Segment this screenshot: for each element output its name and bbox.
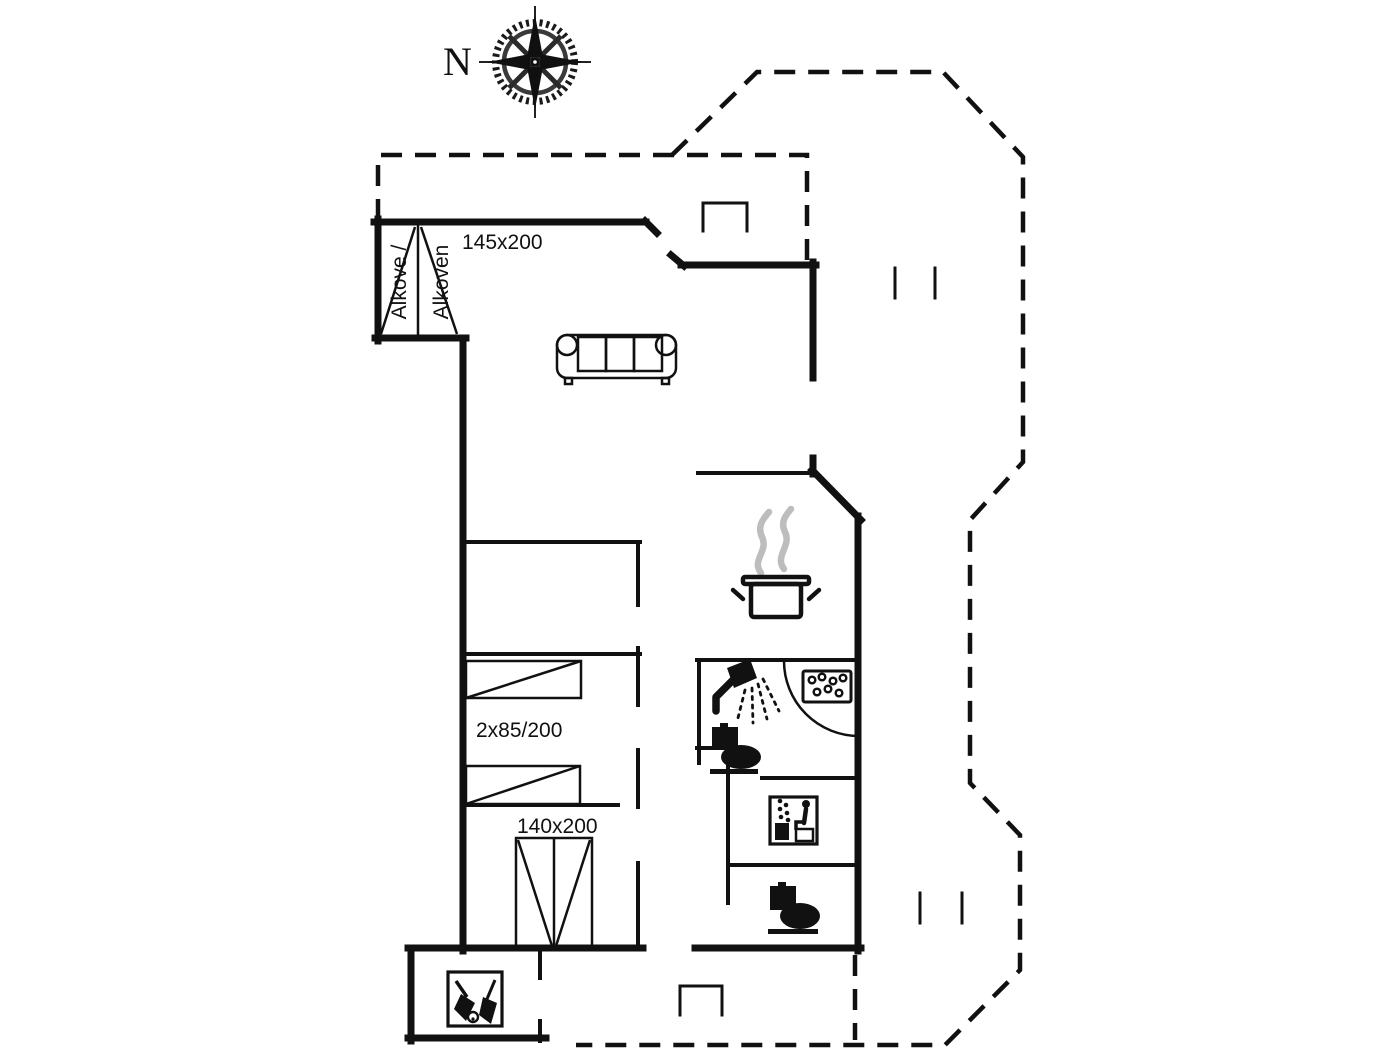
alcove-label-line2: Alkoven <box>430 245 453 320</box>
floor-plan-canvas: N <box>0 0 1400 1050</box>
whirlpool-tub-icon <box>803 671 851 702</box>
shower-icon <box>716 659 779 723</box>
sauna-icon <box>770 797 817 844</box>
toilet-icon <box>768 882 820 934</box>
double-bed-icon <box>516 838 592 948</box>
toilet-icon <box>710 723 761 774</box>
double-bed-size-label: 140x200 <box>517 815 598 838</box>
cleaning-equipment-icon <box>448 972 502 1026</box>
interior-walls <box>466 473 858 1041</box>
entrance-step-icon <box>680 986 722 1015</box>
terrace-outline-dashed <box>378 72 1023 1045</box>
cooking-pot-icon <box>733 577 819 617</box>
steam-icon <box>758 509 791 573</box>
entrance-step-icon <box>703 203 747 231</box>
sofa-icon <box>557 335 676 384</box>
terrace-opening-ticks <box>895 268 962 923</box>
alcove-label-line1: Alkove / <box>388 244 411 319</box>
alcove-bed-size-label: 145x200 <box>462 231 543 254</box>
north-label: N <box>443 39 472 84</box>
single-bed-icon <box>466 766 580 804</box>
compass-rose-icon <box>479 6 591 118</box>
single-beds-size-label: 2x85/200 <box>476 719 562 742</box>
single-bed-icon <box>466 661 581 698</box>
